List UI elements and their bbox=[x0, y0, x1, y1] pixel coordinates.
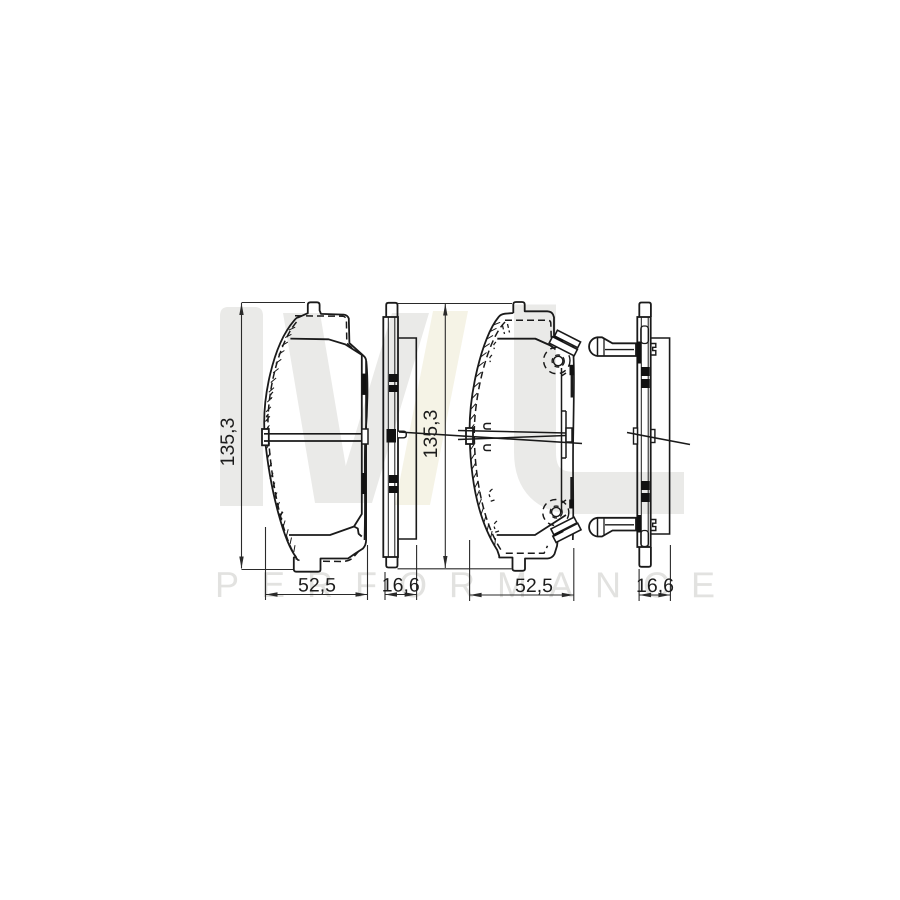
svg-text:52,5: 52,5 bbox=[515, 575, 553, 597]
svg-text:16,6: 16,6 bbox=[382, 574, 420, 596]
svg-text:52,5: 52,5 bbox=[298, 574, 336, 596]
svg-text:135,3: 135,3 bbox=[217, 418, 239, 467]
svg-text:16,6: 16,6 bbox=[636, 575, 674, 597]
